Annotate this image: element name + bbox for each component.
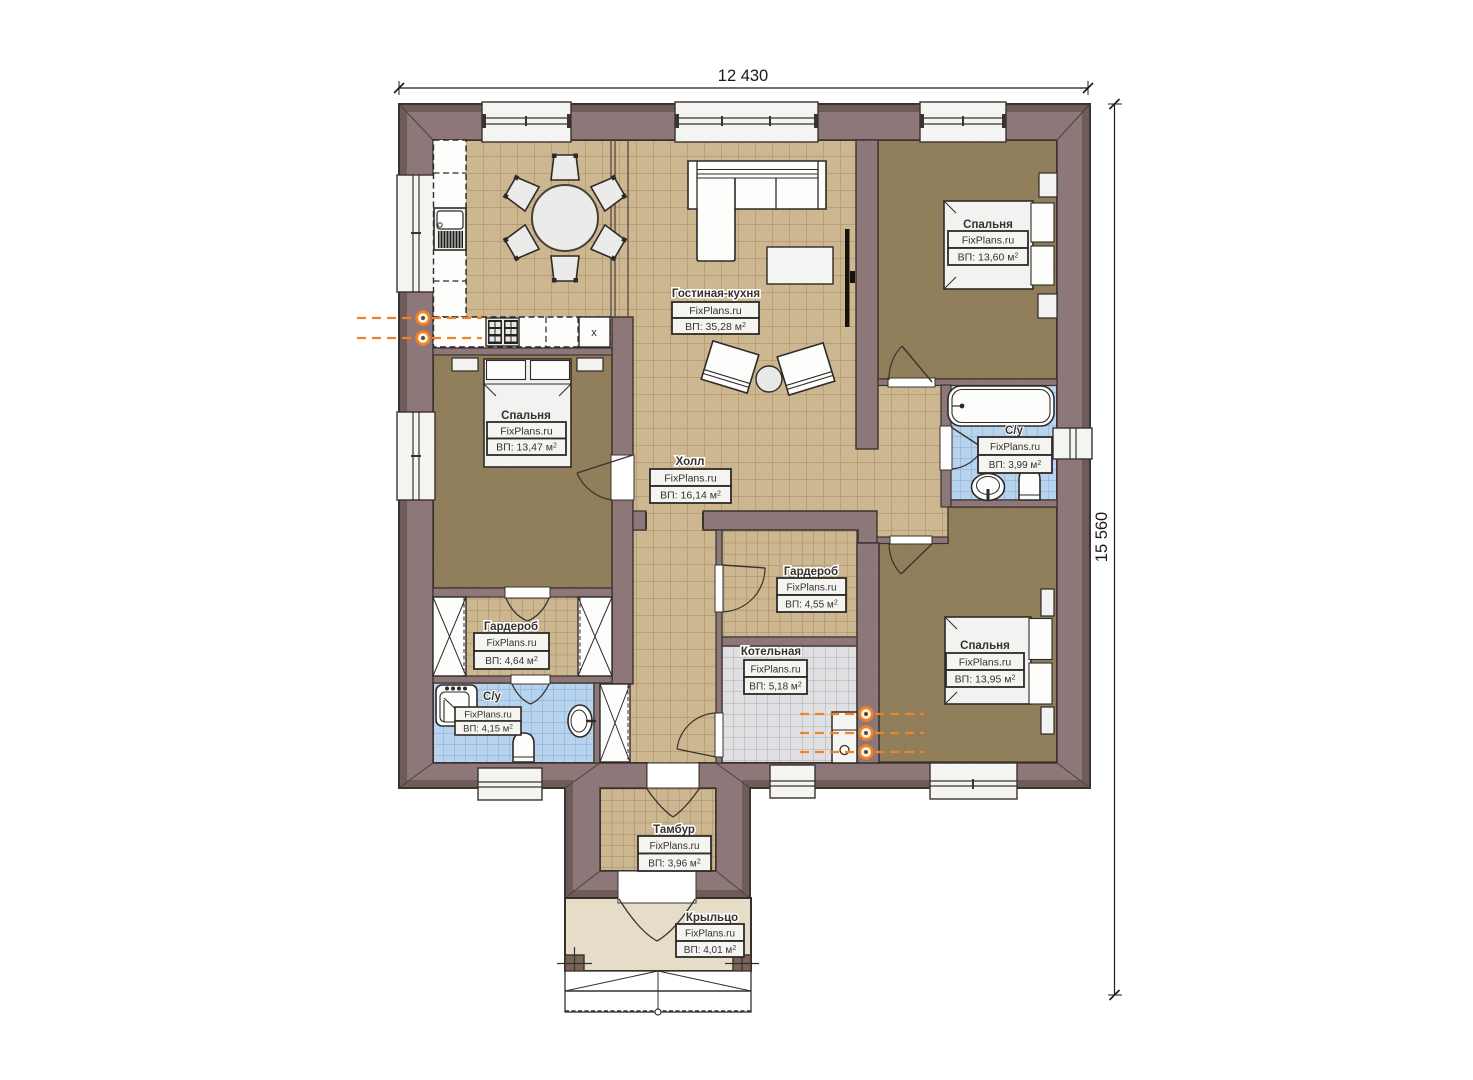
svg-text:ВП: 13,95 м2: ВП: 13,95 м2 [955,674,1016,686]
svg-text:Гардероб: Гардероб [484,621,538,633]
svg-text:Крыльцо: Крыльцо [686,912,738,924]
svg-text:FixPlans.ru: FixPlans.ru [486,638,536,649]
svg-text:FixPlans.ru: FixPlans.ru [464,710,512,721]
svg-text:FixPlans.ru: FixPlans.ru [786,583,836,594]
svg-text:15 560: 15 560 [1093,512,1111,562]
svg-text:Гардероб: Гардероб [784,566,838,578]
svg-text:Тамбур: Тамбур [653,824,695,836]
svg-text:Спальня: Спальня [501,410,551,422]
svg-text:x: x [591,327,597,339]
svg-text:ВП: 4,64 м2: ВП: 4,64 м2 [485,656,538,667]
svg-text:FixPlans.ru: FixPlans.ru [500,426,553,438]
svg-text:ВП: 35,28 м2: ВП: 35,28 м2 [685,321,746,333]
svg-text:FixPlans.ru: FixPlans.ru [990,442,1040,453]
svg-text:FixPlans.ru: FixPlans.ru [685,929,735,940]
svg-text:ВП: 13,60 м2: ВП: 13,60 м2 [958,252,1019,264]
svg-text:FixPlans.ru: FixPlans.ru [959,657,1012,669]
svg-text:С/у: С/у [483,691,502,703]
svg-text:ВП: 13,47 м2: ВП: 13,47 м2 [496,442,557,454]
svg-text:Спальня: Спальня [963,219,1013,231]
svg-text:FixPlans.ru: FixPlans.ru [750,665,800,676]
svg-text:ВП: 4,01 м2: ВП: 4,01 м2 [684,945,737,956]
svg-text:FixPlans.ru: FixPlans.ru [664,473,717,485]
svg-text:ВП: 4,15 м2: ВП: 4,15 м2 [463,724,513,735]
svg-text:Котельная: Котельная [741,646,801,658]
svg-text:ВП: 3,96 м2: ВП: 3,96 м2 [648,859,701,870]
svg-text:FixPlans.ru: FixPlans.ru [649,841,699,852]
svg-text:FixPlans.ru: FixPlans.ru [689,305,742,317]
svg-text:12 430: 12 430 [718,67,768,85]
svg-text:С/у: С/у [1005,425,1024,437]
svg-text:ВП: 4,55 м2: ВП: 4,55 м2 [785,600,838,611]
svg-text:FixPlans.ru: FixPlans.ru [962,235,1015,247]
svg-text:ВП: 5,18 м2: ВП: 5,18 м2 [749,682,802,693]
svg-text:Холл: Холл [676,456,705,468]
svg-text:ВП: 16,14 м2: ВП: 16,14 м2 [660,490,721,502]
svg-text:ВП: 3,99 м2: ВП: 3,99 м2 [989,460,1042,471]
svg-text:Спальня: Спальня [960,640,1010,652]
svg-text:Гостиная-кухня: Гостиная-кухня [672,288,760,300]
